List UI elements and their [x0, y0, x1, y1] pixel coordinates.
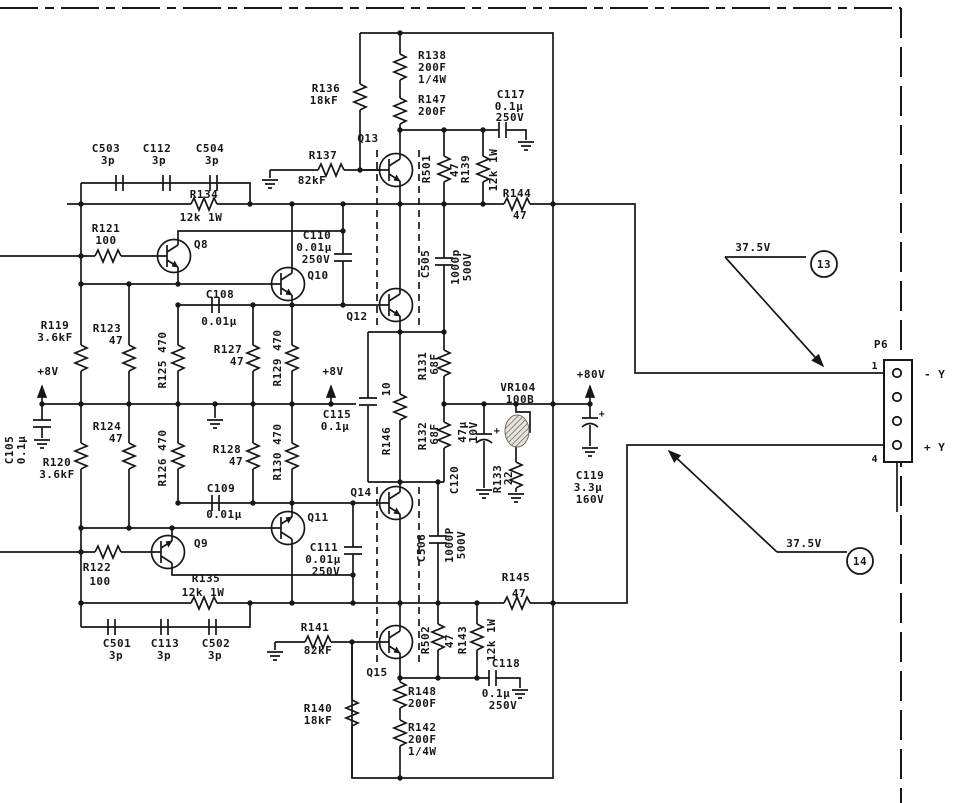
label-q15: Q15	[366, 666, 387, 679]
ground-r137-icon	[262, 180, 278, 188]
label-c506-ref: C506	[415, 534, 428, 563]
callout-14-voltage: 37.5V	[786, 537, 822, 550]
transistor-q8	[158, 240, 191, 273]
capacitor-c105	[33, 420, 51, 427]
label-c118-v2: 250V	[489, 699, 518, 712]
label-r122-ref: R122	[83, 561, 112, 574]
label-r133-val: 22	[502, 471, 515, 485]
ground-c105-icon	[34, 440, 50, 448]
label-c108-val: 0.01μ	[201, 315, 237, 328]
label-r138-v2: 1/4W	[418, 73, 447, 86]
label-r127-val: 47	[230, 355, 244, 368]
label-c105-val: 0.1μ	[15, 436, 28, 465]
resistor-r143	[471, 624, 483, 650]
label-p8v-mid: +8V	[322, 365, 343, 378]
wires	[0, 33, 897, 778]
label-c112-val: 3p	[152, 154, 166, 167]
bus-minus-y	[67, 204, 892, 373]
transistor-q9	[152, 536, 185, 569]
label-c505-ref: C505	[419, 250, 432, 279]
p6-pos-y-label: + Y	[924, 441, 945, 454]
p6-pin1-icon	[893, 369, 901, 377]
callout-13-number: 13	[817, 258, 831, 271]
label-r145-val: 47	[512, 587, 526, 600]
label-r135-val: 12k 1W	[182, 586, 225, 599]
connector-p6: P6 1 4 - Y + Y	[871, 338, 945, 465]
cap-row-bottom	[81, 603, 250, 627]
label-r123-val: 47	[109, 334, 123, 347]
resistor-r123	[123, 345, 135, 371]
label-r142-v2: 1/4W	[408, 745, 437, 758]
label-c109-val: 0.01μ	[206, 508, 242, 521]
label-r134-ref: R134	[190, 188, 219, 201]
label-r137-ref: R137	[309, 149, 338, 162]
label-c506-v2: 500V	[455, 531, 468, 560]
vr104-component	[505, 415, 529, 447]
capacitor-c110	[334, 254, 352, 261]
callout-14: 37.5V 14	[669, 451, 873, 574]
label-c119-plus: +	[599, 409, 606, 420]
schematic-svg: 37.5V 13 37.5V 14 P6 1 4 - Y + Y C503 3p…	[0, 0, 953, 803]
label-r141-ref: R141	[301, 621, 330, 634]
label-r125: R125 470	[156, 332, 169, 389]
label-r146-val: 10	[380, 382, 393, 396]
label-c503-val: 3p	[101, 154, 115, 167]
capacitor-c118	[489, 670, 496, 686]
resistor-r138	[394, 54, 406, 80]
p6-pin1-number: 1	[871, 361, 878, 372]
label-r146-ref: R146	[380, 427, 393, 456]
label-r147-v1: 200F	[418, 105, 447, 118]
schematic-page: 37.5V 13 37.5V 14 P6 1 4 - Y + Y C503 3p…	[0, 0, 953, 803]
label-c110-v2: 250V	[302, 253, 331, 266]
callout-14-number: 14	[853, 555, 867, 568]
capacitor-c117	[499, 122, 506, 138]
resistor-r128	[247, 443, 259, 469]
label-c502-val: 3p	[208, 649, 222, 662]
label-q8: Q8	[194, 238, 208, 251]
callout-13-voltage: 37.5V	[735, 241, 771, 254]
resistor-r148	[394, 682, 406, 708]
label-r501-ref: R501	[420, 155, 433, 184]
label-r130: R130 470	[271, 424, 284, 481]
label-r148-v1: 200F	[408, 697, 437, 710]
label-c119-v2: 160V	[576, 493, 605, 506]
ground-c118-icon	[512, 690, 528, 698]
ground-c117-icon	[518, 142, 534, 150]
capacitor-c115	[359, 398, 377, 405]
label-r131-val: 68F	[428, 353, 441, 374]
label-q14: Q14	[350, 486, 371, 499]
ground-c119-icon	[582, 448, 598, 456]
resistor-r119	[75, 345, 87, 371]
label-r144-ref: R144	[503, 187, 532, 200]
label-r139-val: 12k 1W	[487, 149, 500, 192]
label-q13: Q13	[357, 132, 378, 145]
label-r137-val: 82kF	[298, 174, 327, 187]
resistor-r147	[394, 98, 406, 124]
resistor-r146	[394, 394, 406, 420]
label-r121-val: 100	[95, 234, 116, 247]
label-c108-ref: C108	[206, 288, 235, 301]
label-c111-v2: 250V	[312, 565, 341, 578]
p6-pin4-icon	[893, 441, 901, 449]
label-c504-val: 3p	[205, 154, 219, 167]
label-r144-val: 47	[513, 209, 527, 222]
label-q11: Q11	[307, 511, 328, 524]
p6-pin4-number: 4	[871, 454, 878, 465]
label-r502-val: 47	[443, 634, 456, 648]
ground-r141-icon	[267, 652, 283, 660]
resistor-r125	[172, 345, 184, 371]
label-r143-ref: R143	[456, 626, 469, 655]
transistor-q12	[380, 289, 413, 322]
label-r126: R126 470	[156, 430, 169, 487]
callout-13: 37.5V 13	[725, 241, 837, 366]
label-r120-val: 3.6kF	[39, 468, 75, 481]
resistor-r126	[172, 443, 184, 469]
transistor-q13	[380, 154, 413, 187]
resistor-r136	[354, 84, 366, 110]
cap-row-top	[81, 183, 250, 204]
label-vr104-val: 100B	[506, 393, 535, 406]
label-q10: Q10	[307, 269, 328, 282]
p6-pin3-icon	[893, 417, 901, 425]
label-q9: Q9	[194, 537, 208, 550]
label-c120-ref: C120	[448, 466, 461, 495]
label-r119-val: 3.6kF	[37, 331, 73, 344]
ground-r133-icon	[508, 494, 524, 502]
transistor-q15	[380, 626, 413, 659]
label-r502-ref: R502	[419, 626, 432, 655]
label-p8v-left: +8V	[37, 365, 58, 378]
vr104-hatched-blob	[505, 415, 529, 447]
label-r140-val: 18kF	[304, 714, 333, 727]
transistor-q11	[272, 512, 305, 545]
resistor-r142	[394, 720, 406, 746]
transistor-q10	[272, 268, 305, 301]
resistor-r124	[123, 443, 135, 469]
label-c117-v2: 250V	[496, 111, 525, 124]
label-c120-plus: +	[494, 426, 501, 437]
p6-name: P6	[874, 338, 888, 351]
label-r128-val: 47	[229, 455, 243, 468]
resistor-r121	[95, 250, 121, 262]
capacitor-c111	[344, 547, 362, 554]
label-r124-val: 47	[109, 432, 123, 445]
callout-13-leader	[725, 257, 823, 366]
resistor-r122	[95, 546, 121, 558]
resistor-r129	[286, 345, 298, 371]
resistor-r120	[75, 443, 87, 469]
label-c118-ref: C118	[492, 657, 521, 670]
label-p80v: +80V	[577, 368, 606, 381]
label-c505-v2: 500V	[461, 253, 474, 282]
c117-row	[400, 130, 526, 140]
label-r134-val: 12k 1W	[180, 211, 223, 224]
callout-14-leader	[669, 451, 777, 552]
label-c501-val: 3p	[109, 649, 123, 662]
resistor-r130	[286, 443, 298, 469]
p6-pin2-icon	[893, 393, 901, 401]
transistor-q14	[380, 487, 413, 520]
label-r141-val: 82kF	[304, 644, 333, 657]
label-r132-val: 68F	[428, 423, 441, 444]
ground-mid-icon	[207, 420, 223, 428]
label-c109-ref: C109	[207, 482, 236, 495]
label-c120-v2: 10V	[467, 421, 480, 442]
label-r129: R129 470	[271, 330, 284, 387]
sheet-border	[0, 8, 901, 803]
resistor-r127	[247, 345, 259, 371]
transistors	[152, 154, 413, 659]
label-r139-ref: R139	[459, 155, 472, 184]
label-r145-ref: R145	[502, 571, 531, 584]
p6-neg-y-label: - Y	[924, 368, 945, 381]
label-r135-ref: R135	[192, 572, 221, 585]
label-c115-val: 0.1μ	[321, 420, 350, 433]
label-r143-val: 12k 1W	[485, 619, 498, 662]
label-r136-val: 18kF	[310, 94, 339, 107]
label-c113-val: 3p	[157, 649, 171, 662]
label-r122-val: 100	[89, 575, 110, 588]
matched-pair-dashes	[377, 150, 419, 664]
ground-c120-icon	[476, 490, 492, 498]
label-q12: Q12	[346, 310, 367, 323]
